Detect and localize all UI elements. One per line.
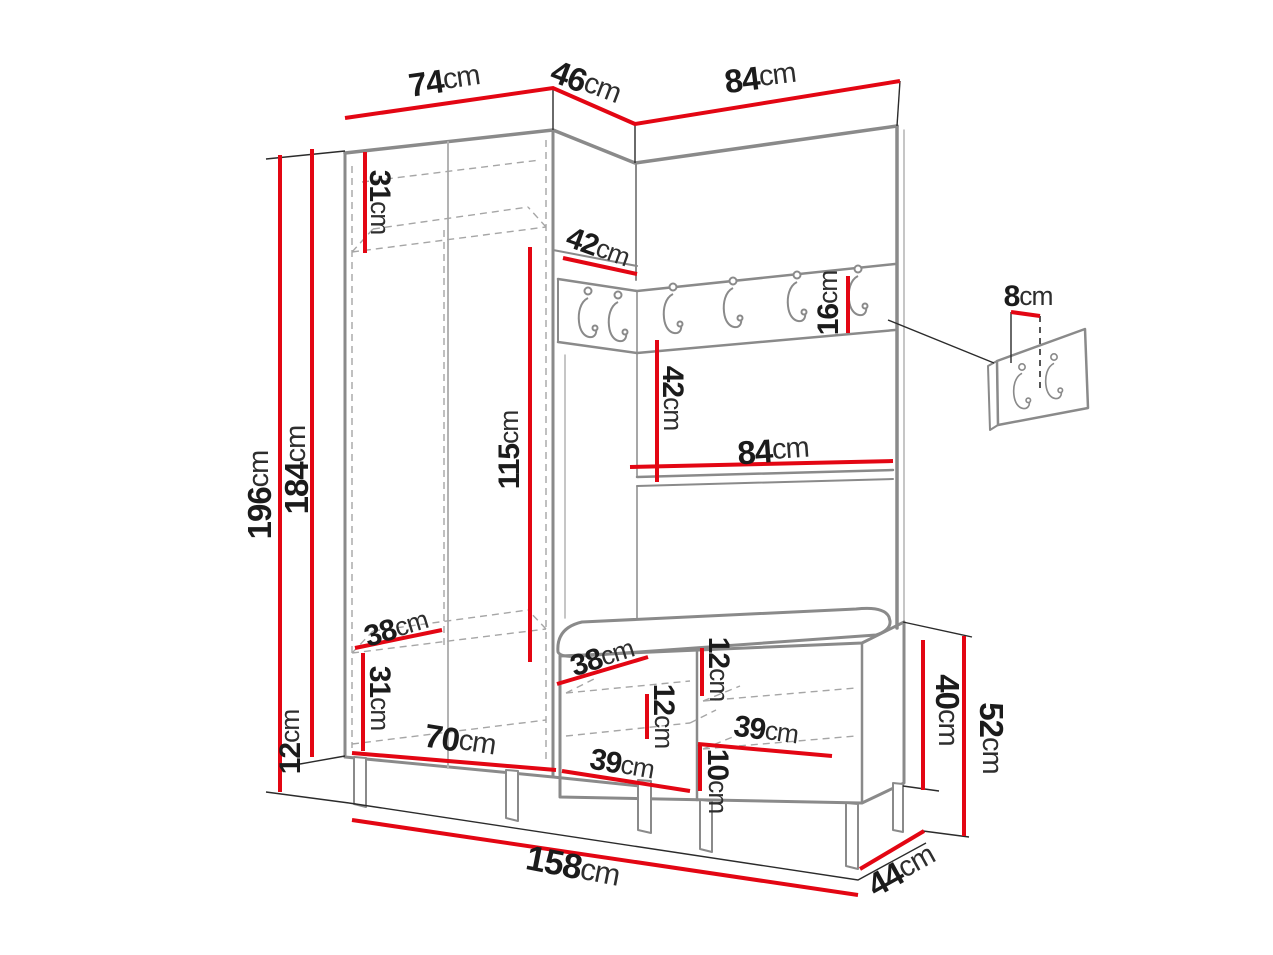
dim-line-8 — [1011, 312, 1040, 316]
hook-icon — [849, 266, 868, 316]
dim-label-31cm-top: 31cm — [364, 170, 397, 235]
bench-leg-right — [846, 803, 858, 869]
wall-hook-panel — [988, 316, 1088, 430]
dim-label-12cm-cushion: 12cm — [703, 637, 736, 702]
dim-label-74cm: 74cm — [406, 57, 482, 104]
hook-icon — [724, 278, 743, 328]
dim-label-16cm: 16cm — [812, 271, 845, 336]
dim-label-38cm-wardrobe: 38cm — [360, 603, 431, 653]
dim-label-184cm: 184cm — [278, 426, 315, 515]
dim-label-196cm: 196cm — [241, 451, 278, 540]
dim-label-31cm-bottom: 31cm — [364, 666, 397, 731]
diagram-canvas: 74cm 46cm 84cm 196cm 184cm 12cm 31cm 42c… — [0, 0, 1273, 955]
dim-label-115cm: 115cm — [493, 411, 526, 490]
dim-label-39cm-right: 39cm — [732, 709, 801, 751]
dim-label-158cm: 158cm — [523, 838, 623, 894]
hook-icon — [788, 272, 807, 322]
dim-label-12cm-bench: 12cm — [648, 684, 681, 749]
bench-leg-rear — [893, 783, 903, 832]
dim-label-70cm: 70cm — [422, 716, 498, 764]
dim-label-42cm-panel: 42cm — [657, 366, 690, 431]
dim-label-10cm: 10cm — [702, 749, 735, 814]
dim-label-84cm-top: 84cm — [722, 54, 797, 99]
hook-icon — [609, 292, 628, 342]
dim-label-40cm: 40cm — [930, 674, 967, 745]
unit-top-edge — [345, 126, 897, 163]
dim-label-12cm-leg: 12cm — [274, 710, 307, 775]
hall-unit-outline — [345, 126, 904, 786]
dim-label-52cm: 52cm — [974, 702, 1011, 773]
wardrobe-leg-left — [354, 757, 366, 807]
shelf-front-bottom — [637, 479, 893, 486]
dim-label-8cm: 8cm — [1004, 280, 1053, 313]
corner-leg — [638, 780, 651, 833]
wardrobe-leg-right — [506, 770, 518, 821]
shelf-front-top — [637, 470, 893, 477]
hook-icon — [579, 288, 598, 338]
dimension-diagram: 74cm 46cm 84cm 196cm 184cm 12cm 31cm 42c… — [0, 0, 1273, 955]
hook-icon — [664, 284, 683, 334]
